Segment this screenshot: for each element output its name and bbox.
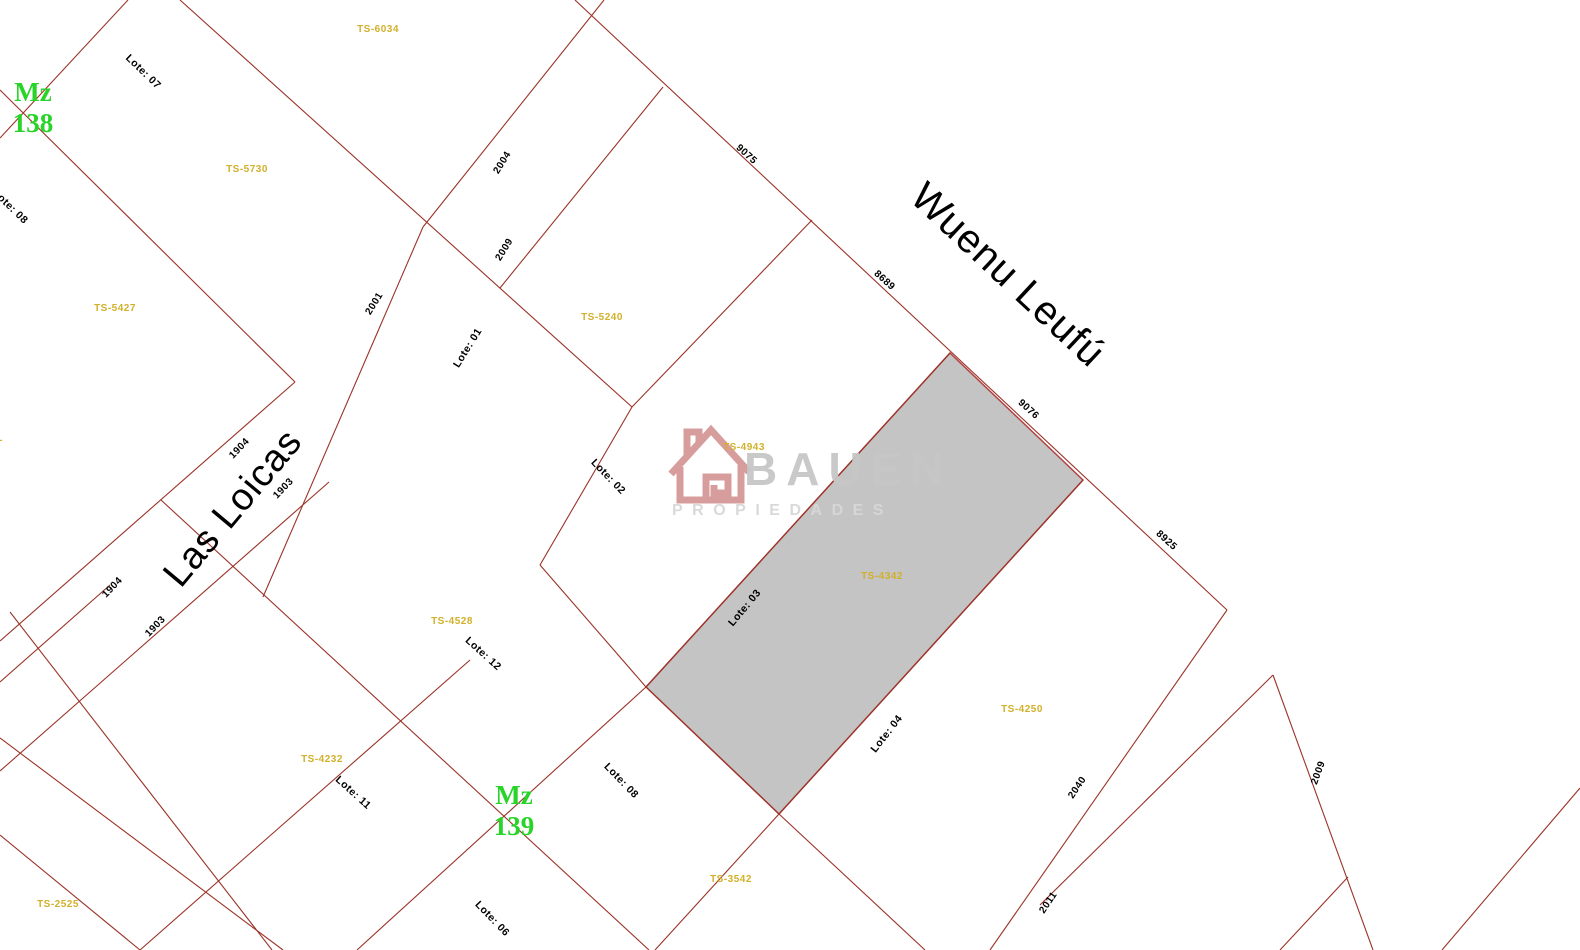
parcel-boundary-line bbox=[180, 0, 632, 407]
parcel-boundary-line bbox=[140, 660, 470, 950]
parcel-boundary-line bbox=[779, 814, 925, 950]
parcel-boundary-line bbox=[632, 220, 812, 407]
parcel-boundary-line bbox=[540, 407, 632, 565]
cadastral-map: BAUEN PROPIEDADES Las LoicasWuenu LeufúL… bbox=[0, 0, 1580, 950]
parcel-boundary-line bbox=[1280, 877, 1348, 950]
parcel-boundary-line bbox=[0, 482, 329, 771]
parcel-boundary-line bbox=[655, 814, 779, 950]
bauen-house-icon bbox=[666, 422, 752, 504]
parcel-boundary-line bbox=[990, 610, 1227, 950]
parcel-boundary-line bbox=[0, 835, 140, 950]
watermark-brand: BAUEN bbox=[744, 442, 953, 496]
parcel-boundary-line bbox=[1040, 675, 1273, 905]
parcel-boundary-line bbox=[263, 227, 423, 597]
parcel-boundary-line bbox=[0, 90, 295, 382]
watermark-subtitle: PROPIEDADES bbox=[672, 502, 893, 520]
parcel-boundary-line bbox=[0, 585, 110, 682]
parcel-boundary-line bbox=[540, 565, 646, 687]
watermark: BAUEN PROPIEDADES bbox=[660, 420, 1000, 530]
parcel-boundary-line bbox=[161, 500, 649, 950]
parcel-boundary-line bbox=[500, 87, 663, 288]
parcel-boundary-line bbox=[0, 738, 283, 950]
parcel-boundary-line bbox=[0, 0, 128, 138]
parcel-boundary-line bbox=[0, 382, 295, 641]
parcel-boundary-line bbox=[1273, 675, 1373, 950]
parcel-boundary-line bbox=[1442, 788, 1580, 950]
parcel-boundary-line bbox=[10, 612, 272, 950]
parcel-boundary-line bbox=[357, 687, 646, 950]
